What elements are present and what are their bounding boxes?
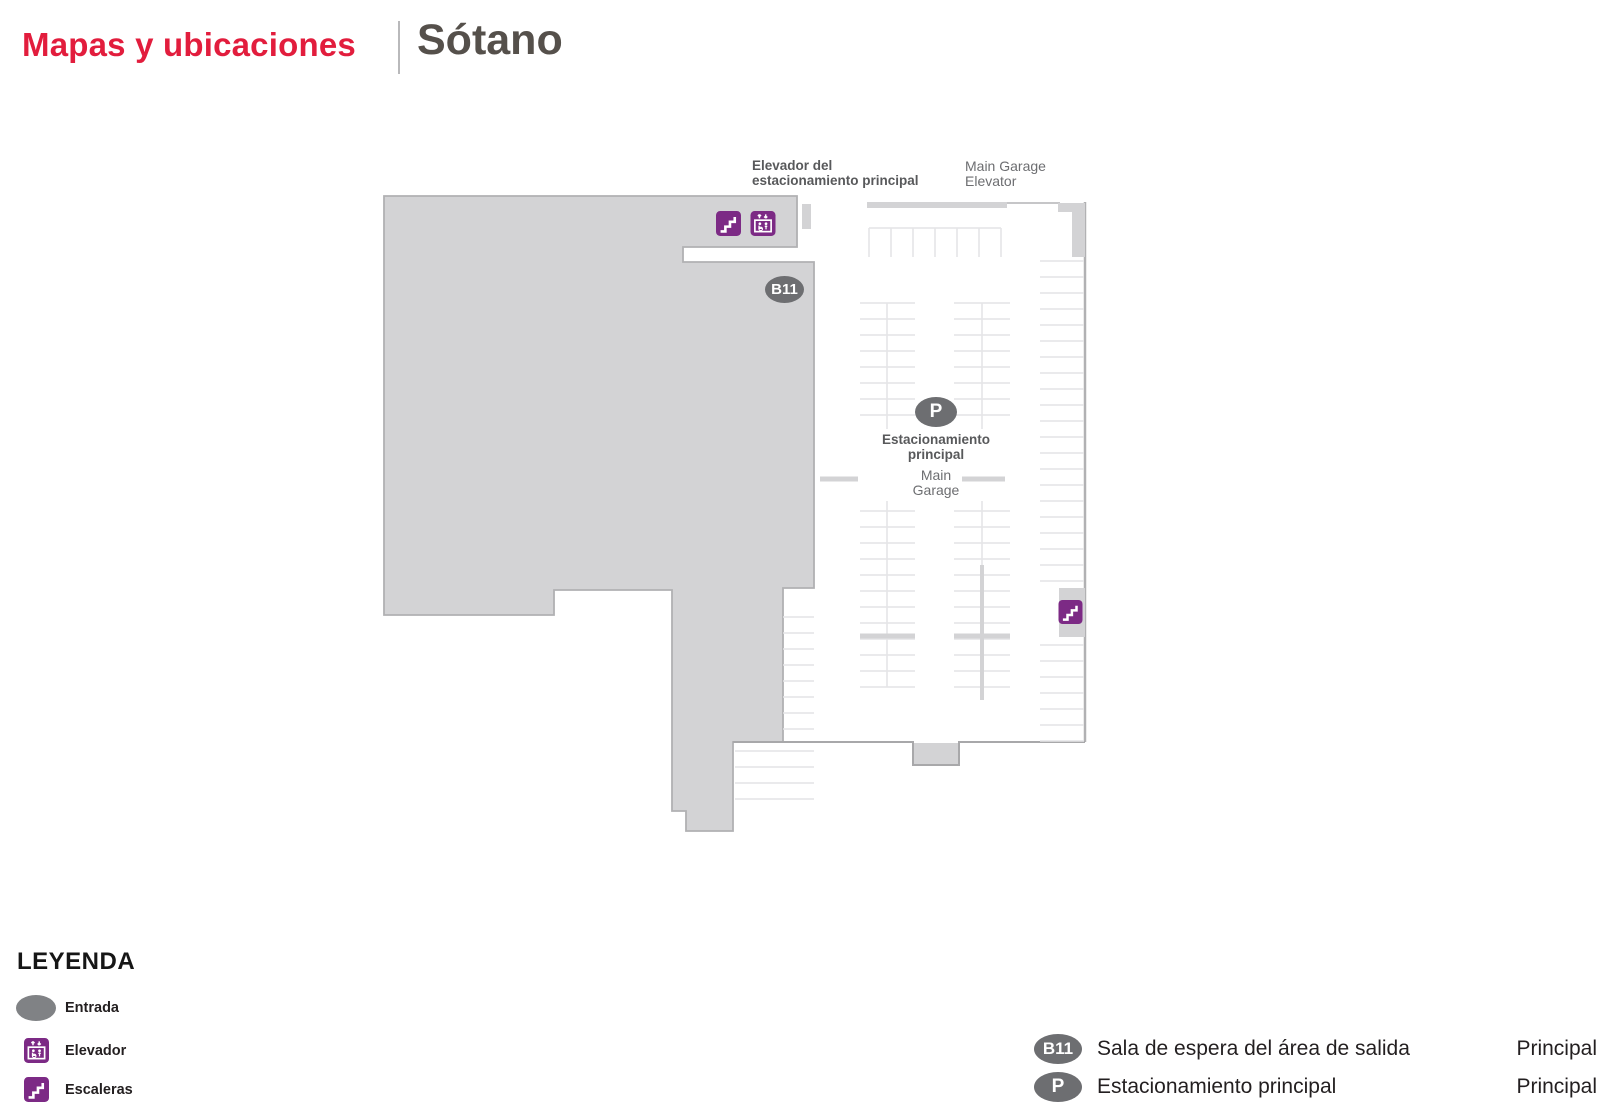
entrance-marker <box>16 995 56 1021</box>
stairs-icon <box>1058 600 1083 624</box>
location-terminal: Principal <box>1516 1037 1597 1061</box>
garage-elevator-label-en: Main Garage Elevator <box>965 159 1046 189</box>
elevator-icon <box>24 1038 49 1063</box>
location-badge-b11: B11 <box>1034 1034 1082 1064</box>
garage-top-strip <box>867 202 1007 208</box>
legend-item-escaleras: Escaleras <box>65 1082 133 1098</box>
legend-item-elevador: Elevador <box>65 1043 126 1059</box>
terminal-area <box>384 196 814 831</box>
garage-corner-block <box>1058 203 1085 257</box>
parking-name-en: Main Garage <box>913 468 960 498</box>
parking-stall-lines <box>869 228 1001 257</box>
garage-notch <box>914 743 958 765</box>
parking-name-es: Estacionamiento principal <box>882 433 990 462</box>
maps-and-locations-page: Mapas y ubicaciones Sótano Elevador del … <box>0 0 1615 1117</box>
map-wall-segment <box>802 204 811 229</box>
garage-elevator-label-es: Elevador del estacionamiento principal <box>752 159 919 188</box>
legend-title: LEYENDA <box>17 948 135 976</box>
location-badge-p: P <box>1034 1072 1082 1102</box>
location-terminal: Principal <box>1516 1075 1597 1099</box>
elevator-icon <box>750 211 776 236</box>
location-name: Sala de espera del área de salida <box>1097 1037 1410 1061</box>
garage-bottom-border <box>733 742 1085 765</box>
stairs-icon <box>24 1077 49 1102</box>
parking-badge: P <box>915 397 957 427</box>
legend-item-entrada: Entrada <box>65 1000 119 1016</box>
location-name: Estacionamiento principal <box>1097 1075 1336 1099</box>
stairs-icon <box>716 211 741 236</box>
gate-b11-badge: B11 <box>765 276 804 303</box>
